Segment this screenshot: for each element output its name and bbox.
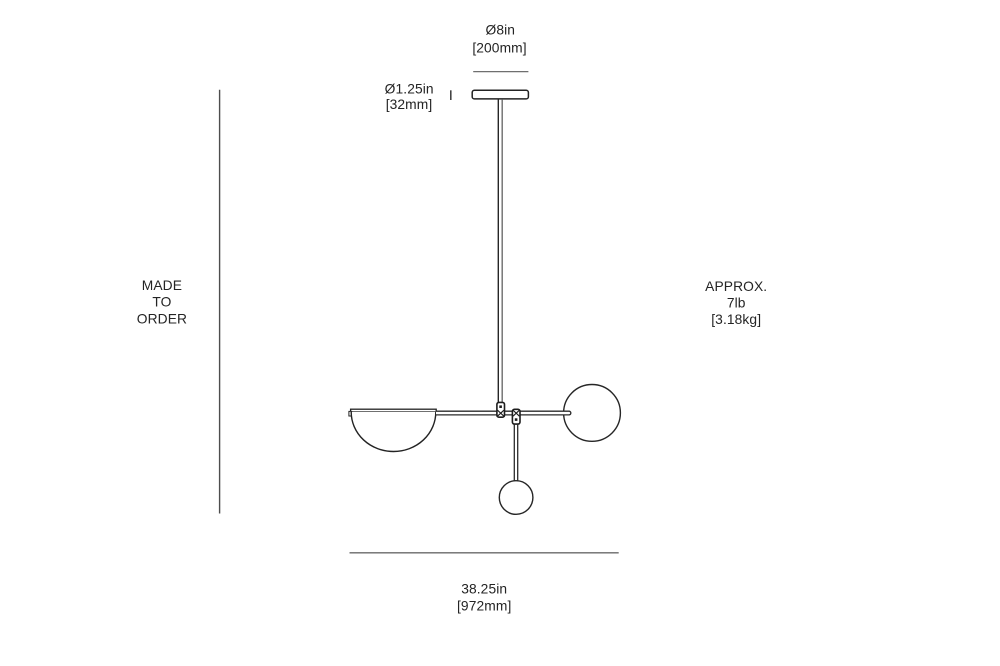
svg-text:[200mm]: [200mm] [472,40,526,55]
svg-text:TO: TO [152,295,171,310]
svg-text:[32mm]: [32mm] [386,97,433,112]
svg-text:38.25in: 38.25in [461,582,507,597]
svg-text:MADE: MADE [142,278,182,293]
svg-text:7lb: 7lb [727,296,746,311]
svg-text:[3.18kg]: [3.18kg] [711,312,761,327]
svg-text:APPROX.: APPROX. [705,279,767,294]
svg-text:[972mm]: [972mm] [457,598,511,613]
svg-text:ORDER: ORDER [137,311,187,326]
svg-text:Ø1.25in: Ø1.25in [385,81,434,96]
svg-text:Ø8in: Ø8in [486,22,516,37]
